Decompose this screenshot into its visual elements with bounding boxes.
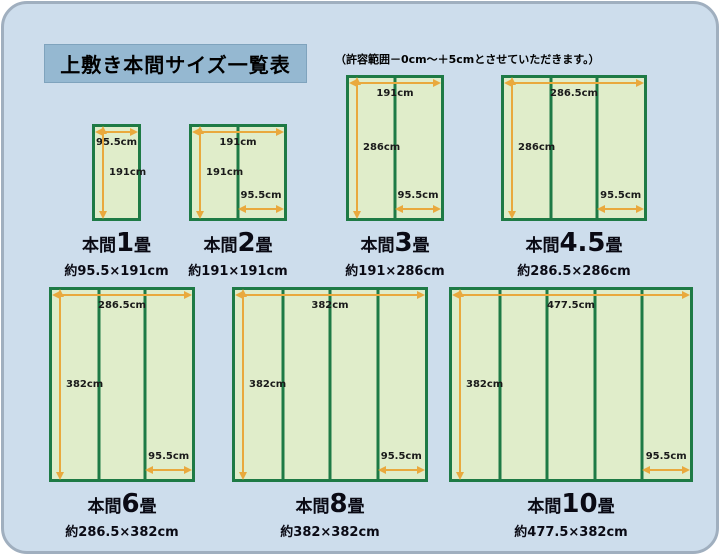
mat-rect-8jo: 382cm 382cm 95.5cm [232,287,428,482]
height-arrow [59,291,61,478]
unit-width-dim-label: 95.5cm [597,190,644,202]
width-arrow [54,294,190,296]
mat-rect-1jo: 95.5cm 191cm [92,124,141,221]
unit-width-dim-label: 95.5cm [238,190,284,202]
unit-width-dim-label: 95.5cm [145,451,192,463]
diagram-honma-1jo: 95.5cm 191cm 本間1畳 約95.5×191cm [92,124,141,279]
diagram-honma-8jo: 382cm 382cm 95.5cm 本間8畳 約382×382cm [232,287,428,540]
height-dim-label: 191cm [206,167,243,179]
height-arrow [356,79,358,217]
diagram-size-text: 約286.5×286cm [517,260,630,279]
mat-rect-6jo: 286.5cm 382cm 95.5cm [49,287,195,482]
width-arrow [506,82,642,84]
mat-rect-10jo: 477.5cm 382cm 95.5cm [449,287,693,482]
height-dim-label: 382cm [66,379,103,391]
diagram-name: 本間10畳 [527,491,614,517]
diagram-honma-6jo: 286.5cm 382cm 95.5cm 本間6畳 約286.5×382cm [49,287,195,540]
unit-width-dim-label: 95.5cm [378,451,426,463]
width-arrow [454,294,688,296]
height-arrow [102,128,104,217]
diagram-honma-3jo: 191cm 286cm 95.5cm 本間3畳 約191×286cm [346,75,444,279]
width-dim-label: 286.5cm [52,300,192,312]
unit-width-arrow [397,208,439,210]
height-dim-label: 382cm [466,379,503,391]
diagram-honma-2jo: 191cm 191cm 95.5cm 本間2畳 約191×191cm [189,124,287,279]
diagram-honma-10jo: 477.5cm 382cm 95.5cm 本間10畳 約477.5×382cm [449,287,693,540]
unit-width-arrow [147,469,190,471]
width-dim-label: 382cm [235,300,425,312]
diagram-size-text: 約382×382cm [280,521,379,540]
mat-rect-3jo: 191cm 286cm 95.5cm [346,75,444,221]
tolerance-note: （許容範囲－0cm～＋5cmとさせていただきます。） [335,51,600,67]
diagram-name: 本間8畳 [295,491,364,517]
width-arrow [237,294,423,296]
diagram-name: 本間6畳 [87,491,156,517]
mat-seam [329,290,332,479]
width-arrow [194,131,282,133]
diagram-size-text: 約477.5×382cm [514,521,627,540]
unit-width-arrow [240,208,282,210]
diagram-name: 本間3畳 [360,230,429,256]
unit-width-arrow [380,469,424,471]
diagram-honma-4-5jo: 286.5cm 286cm 95.5cm 本間4.5畳 約286.5×286cm [501,75,647,279]
width-dim-label: 286.5cm [504,88,644,100]
height-arrow [511,79,513,217]
height-dim-label: 191cm [109,167,146,179]
mat-rect-4-5jo: 286.5cm 286cm 95.5cm [501,75,647,221]
width-dim-label: 191cm [192,137,284,149]
height-arrow [242,291,244,478]
unit-width-arrow [599,208,642,210]
height-arrow [199,128,201,217]
height-dim-label: 286cm [363,142,400,154]
mat-seam [593,290,596,479]
mat-rect-2jo: 191cm 191cm 95.5cm [189,124,287,221]
unit-width-dim-label: 95.5cm [395,190,441,202]
unit-width-dim-label: 95.5cm [642,451,690,463]
diagram-size-text: 約191×286cm [345,260,444,279]
diagram-size-text: 約95.5×191cm [64,260,168,279]
width-arrow [351,82,439,84]
diagram-size-text: 約286.5×382cm [65,521,178,540]
title-box: 上敷き本間サイズ一覧表 [44,44,307,83]
diagram-size-text: 約191×191cm [188,260,287,279]
width-dim-label: 191cm [349,88,441,100]
mat-seam [546,290,549,479]
page-title: 上敷き本間サイズ一覧表 [60,49,290,78]
diagram-name: 本間4.5畳 [525,230,622,256]
width-dim-label: 477.5cm [452,300,690,312]
diagram-name: 本間1畳 [82,230,151,256]
unit-width-arrow [644,469,688,471]
diagram-name: 本間2畳 [203,230,272,256]
size-chart-panel: 上敷き本間サイズ一覧表 （許容範囲－0cm～＋5cmとさせていただきます。） 9… [1,1,719,554]
height-dim-label: 286cm [518,142,555,154]
height-dim-label: 382cm [249,379,286,391]
height-arrow [459,291,461,478]
